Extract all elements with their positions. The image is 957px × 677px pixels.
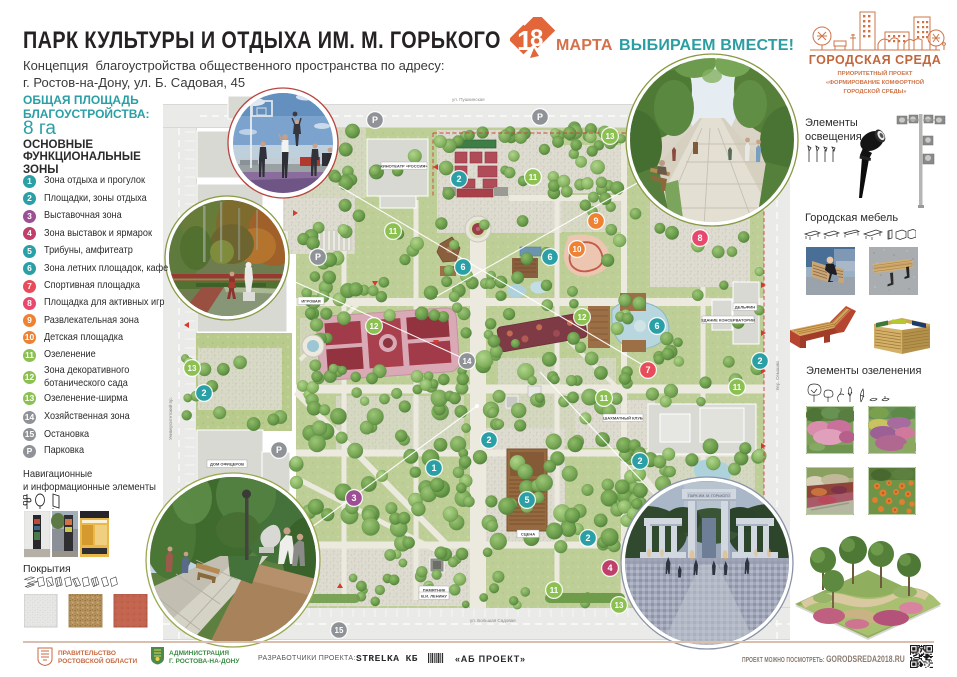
- svg-text:11: 11: [529, 173, 538, 182]
- svg-text:8: 8: [697, 233, 702, 243]
- svg-text:Университетский пр.: Университетский пр.: [167, 397, 173, 440]
- svg-text:ЗДАНИЕ КОНСЕРВАТОРИИ: ЗДАНИЕ КОНСЕРВАТОРИИ: [701, 318, 755, 323]
- svg-text:3: 3: [351, 493, 356, 503]
- svg-text:12: 12: [578, 313, 587, 322]
- svg-text:ДЕЛЬФИН: ДЕЛЬФИН: [735, 305, 755, 310]
- svg-text:11: 11: [550, 586, 559, 595]
- svg-text:13: 13: [188, 364, 197, 373]
- svg-text:P: P: [537, 112, 543, 122]
- svg-text:6: 6: [547, 252, 552, 262]
- svg-text:ГОРОДСКАЯ СРЕДА: ГОРОДСКАЯ СРЕДА: [809, 53, 942, 67]
- svg-text:8: 8: [530, 25, 543, 52]
- svg-text:15: 15: [335, 626, 344, 635]
- svg-text:10: 10: [573, 245, 582, 254]
- svg-text:9: 9: [593, 216, 598, 226]
- svg-text:ШАХМАТНЫЙ КЛУБ: ШАХМАТНЫЙ КЛУБ: [603, 416, 643, 421]
- svg-text:ДОМ ОФИЦЕРОВ: ДОМ ОФИЦЕРОВ: [210, 462, 244, 467]
- svg-text:«ФОРМИРОВАНИЕ КОМФОРТНОЙ: «ФОРМИРОВАНИЕ КОМФОРТНОЙ: [826, 78, 924, 86]
- svg-text:4: 4: [607, 563, 612, 573]
- svg-text:P: P: [372, 115, 378, 125]
- svg-text:ГОРОДСКОЙ СРЕДЫ»: ГОРОДСКОЙ СРЕДЫ»: [843, 87, 906, 95]
- svg-text:2: 2: [637, 456, 642, 466]
- svg-text:ИГРОВАЯ: ИГРОВАЯ: [301, 299, 320, 304]
- svg-text:ул. Пушкинская: ул. Пушкинская: [452, 97, 485, 102]
- svg-text:2: 2: [585, 533, 590, 543]
- svg-text:В.И. ЛЕНИНУ: В.И. ЛЕНИНУ: [421, 594, 447, 599]
- svg-text:6: 6: [654, 321, 659, 331]
- svg-text:2: 2: [201, 388, 206, 398]
- svg-text:6: 6: [460, 262, 465, 272]
- svg-text:пер. Семашко: пер. Семашко: [775, 360, 780, 390]
- svg-text:2: 2: [456, 174, 461, 184]
- svg-text:ПРИОРИТЕТНЫЙ ПРОЕКТ: ПРИОРИТЕТНЫЙ ПРОЕКТ: [838, 69, 913, 77]
- svg-text:13: 13: [615, 601, 624, 610]
- svg-text:P: P: [276, 445, 282, 455]
- svg-text:12: 12: [370, 322, 379, 331]
- svg-text:2: 2: [757, 356, 762, 366]
- svg-text:ул. Большая Садовая: ул. Большая Садовая: [470, 618, 516, 623]
- svg-text:11: 11: [600, 394, 609, 403]
- svg-text:1: 1: [431, 463, 436, 473]
- svg-text:11: 11: [389, 227, 398, 236]
- svg-text:5: 5: [524, 495, 529, 505]
- svg-text:2: 2: [486, 435, 491, 445]
- svg-text:СЦЕНА: СЦЕНА: [521, 532, 535, 537]
- svg-text:14: 14: [463, 357, 472, 366]
- svg-text:7: 7: [645, 365, 650, 375]
- svg-text:P: P: [315, 252, 321, 262]
- svg-text:13: 13: [606, 132, 615, 141]
- svg-text:КИНОТЕАТР «РОССИЯ»: КИНОТЕАТР «РОССИЯ»: [380, 164, 428, 169]
- svg-text:11: 11: [733, 383, 742, 392]
- svg-text:ПАРК ИМ. М. ГОРЬКОГО: ПАРК ИМ. М. ГОРЬКОГО: [688, 494, 730, 498]
